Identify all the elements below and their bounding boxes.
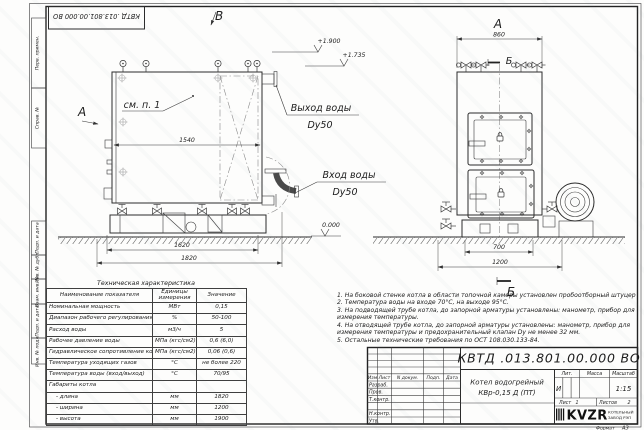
elevation-1900: +1.900 bbox=[318, 38, 341, 45]
param-units: МПа (кгс/см2) bbox=[153, 347, 197, 358]
drain-valve-icon bbox=[198, 205, 207, 215]
bolt-icon bbox=[480, 212, 484, 216]
bolt-icon bbox=[529, 184, 533, 188]
param-units: °С bbox=[153, 370, 197, 381]
note-item: 5. Остальные технические требования по О… bbox=[337, 337, 639, 344]
param-name: Диапазон рабочего регулирования bbox=[47, 314, 153, 325]
param-value: 0,6 (6,0) bbox=[197, 336, 247, 347]
param-value bbox=[197, 381, 247, 392]
bolt-icon bbox=[520, 212, 524, 216]
bolt-icon bbox=[480, 115, 484, 119]
margin-label: Подп. и дата bbox=[35, 305, 41, 336]
section-letter-b-top: Б bbox=[506, 56, 513, 67]
tech-table-title: Техническая характеристика bbox=[46, 280, 246, 287]
margin-label: Подп. и дата bbox=[35, 222, 41, 253]
crosshair-mark-icon bbox=[118, 74, 127, 83]
param-units: мм bbox=[153, 392, 197, 403]
drain-valve-icon bbox=[153, 205, 162, 215]
header-units: Единицы измерения bbox=[153, 289, 197, 303]
dimension-1540: 1540 bbox=[179, 137, 195, 144]
param-name: Рабочее давление воды bbox=[47, 336, 153, 347]
table-row: Диапазон рабочего регулирования%50-100 bbox=[47, 314, 247, 325]
table-header-row: Наименование показателя Единицы измерени… bbox=[47, 289, 247, 303]
safety-valve-icon bbox=[215, 60, 221, 72]
bolt-icon bbox=[520, 171, 524, 175]
param-units: МВт bbox=[153, 303, 197, 314]
elevation-0000: 0.000 bbox=[322, 222, 340, 229]
table-row: Номинальная мощностьМВт0,15 bbox=[47, 303, 247, 314]
bolt-icon bbox=[529, 202, 533, 206]
bolt-icon bbox=[527, 147, 531, 151]
drain-valve-icon bbox=[228, 205, 237, 215]
param-units: °С bbox=[153, 358, 197, 369]
view-letter-a-front: А bbox=[493, 17, 502, 31]
table-row: Температура уходящих газов°Сне более 220 bbox=[47, 358, 247, 369]
tech-table-body: Номинальная мощностьМВт0,15Диапазон рабо… bbox=[47, 303, 247, 426]
mass-header: Масса bbox=[587, 371, 602, 377]
top-doc-number: КВТД .013.801.00.000 ВО bbox=[53, 12, 140, 20]
outlet-dn-label: Dy50 bbox=[307, 120, 332, 131]
notes: 1. На боковой стенке котла в области топ… bbox=[337, 292, 639, 344]
sheet-label: Лист bbox=[558, 400, 571, 406]
dimension-1620: 1620 bbox=[174, 242, 190, 249]
door-lock-icon bbox=[498, 189, 504, 197]
table-row: Температура воды (вход/выход)°С70/95 bbox=[47, 370, 247, 381]
see-note-label: см. п. 1 bbox=[124, 100, 161, 111]
bolt-icon bbox=[527, 129, 531, 133]
bolt-icon bbox=[500, 212, 504, 216]
dimension-1820: 1820 bbox=[181, 255, 197, 262]
format-label: Формат bbox=[596, 425, 615, 430]
product-title-line2: КВр-0,15 Д (ПТ) bbox=[478, 389, 536, 397]
sheets-label: Листов bbox=[598, 400, 617, 406]
bolt-icon bbox=[480, 171, 484, 175]
side-view-annotations: 1540 1620 1820 см. п. 1 А В Выход воды D… bbox=[77, 9, 386, 267]
inlet-label: Вход воды bbox=[322, 170, 376, 181]
param-name: Гидравлическое сопротивление котла bbox=[47, 347, 153, 358]
param-value: 0,06 (0,6) bbox=[197, 347, 247, 358]
header-value: Значение bbox=[197, 289, 247, 303]
margin-label: Перв. примен. bbox=[35, 36, 41, 71]
param-name: Расход воды bbox=[47, 325, 153, 336]
outlet-label: Выход воды bbox=[291, 103, 352, 114]
view-letter-v-top: В bbox=[215, 9, 223, 23]
margin-column: Перв. примен. Справ. № Подп. и дата Инв.… bbox=[32, 18, 47, 367]
param-units: мм bbox=[153, 403, 197, 414]
doc-number: КВТД .013.801.00.000 ВО bbox=[458, 351, 641, 366]
param-value: 1900 bbox=[197, 414, 247, 425]
safety-valve-icon bbox=[527, 62, 545, 72]
table-row: - ширинамм1200 bbox=[47, 403, 247, 414]
table-row: Гидравлическое сопротивление котлаМПа (к… bbox=[47, 347, 247, 358]
title-block: Изм Лист N докум. Подп. Дата Разраб. Про… bbox=[368, 348, 641, 430]
header-name: Наименование показателя bbox=[47, 289, 153, 303]
table-row: Габариты котла bbox=[47, 381, 247, 392]
table-row: Расход водым3/ч5 bbox=[47, 325, 247, 336]
logo-caption-1: КОТЕЛЬНЫЙ bbox=[608, 410, 634, 415]
param-units: % bbox=[153, 314, 197, 325]
elevation-1735: +1.735 bbox=[343, 52, 366, 59]
param-name: Температура воды (вход/выход) bbox=[47, 370, 153, 381]
lit-header: Лит. bbox=[560, 371, 572, 377]
param-value: 5 bbox=[197, 325, 247, 336]
bolt-icon bbox=[500, 171, 504, 175]
logo-caption-2: ЗАВОД РЭП bbox=[608, 415, 631, 420]
bolt-icon bbox=[480, 159, 484, 163]
tech-table: Наименование показателя Единицы измерени… bbox=[46, 288, 247, 426]
view-letter-a-side: А bbox=[77, 105, 86, 119]
param-name: - длина bbox=[47, 392, 153, 403]
side-valve-icon bbox=[441, 202, 456, 212]
table-row: Рабочее давление водыМПа (кгс/см2)0,6 (6… bbox=[47, 336, 247, 347]
param-value: 50-100 bbox=[197, 314, 247, 325]
door-lock-icon bbox=[497, 133, 503, 141]
lit-value: И bbox=[556, 385, 562, 393]
param-name: Габариты котла bbox=[47, 381, 153, 392]
boiler-front-view bbox=[373, 62, 625, 244]
boiler-side-view bbox=[58, 60, 312, 244]
side-valve-icon bbox=[441, 219, 456, 229]
inlet-dn-label: Dy50 bbox=[332, 187, 357, 198]
col-izm: Изм bbox=[368, 375, 378, 381]
sheets-value: 2 bbox=[627, 400, 630, 406]
side-valve-icon bbox=[542, 202, 557, 212]
tech-characteristics: Техническая характеристика Наименование … bbox=[46, 280, 246, 426]
top-doc-number-box: КВТД .013.801.00.000 ВО bbox=[49, 7, 145, 30]
bolt-icon bbox=[519, 159, 523, 163]
sign-row-nkontr: Н.контр. bbox=[369, 411, 390, 417]
sign-row-razrab: Разраб. bbox=[369, 382, 388, 388]
sign-row-tkontr: Т.контр. bbox=[369, 397, 390, 403]
param-value: 1820 bbox=[197, 392, 247, 403]
crosshair-mark-icon bbox=[119, 168, 128, 177]
param-name: - высота bbox=[47, 414, 153, 425]
margin-label: Взам. инв. № bbox=[35, 276, 41, 307]
crosshair-mark-icon bbox=[119, 118, 128, 127]
param-value: не более 220 bbox=[197, 358, 247, 369]
drawing-sheet: Перв. примен. Справ. № Подп. и дата Инв.… bbox=[0, 0, 644, 430]
param-units: МПа (кгс/см2) bbox=[153, 336, 197, 347]
crosshair-mark-icon bbox=[214, 74, 223, 83]
sheet-value: 1 bbox=[575, 400, 578, 406]
dimension-1200: 1200 bbox=[492, 259, 508, 266]
param-value: 1200 bbox=[197, 403, 247, 414]
logo-text: KVZR bbox=[567, 409, 608, 424]
scale-value: 1:15 bbox=[616, 385, 632, 393]
col-data: Дата bbox=[445, 375, 458, 381]
product-title-line1: Котел водогрейный bbox=[470, 379, 544, 387]
safety-valve-icon bbox=[143, 60, 149, 72]
param-name: - ширина bbox=[47, 403, 153, 414]
company-logo: KVZR КОТЕЛЬНЫЙ ЗАВОД РЭП bbox=[556, 409, 634, 424]
table-row: - длинамм1820 bbox=[47, 392, 247, 403]
col-ndocum: N докум. bbox=[397, 375, 418, 381]
safety-valve-icon bbox=[254, 60, 260, 72]
table-row: - высотамм1900 bbox=[47, 414, 247, 425]
safety-valve-icon bbox=[511, 62, 529, 72]
param-name: Номинальная мощность bbox=[47, 303, 153, 314]
margin-label: Справ. № bbox=[35, 107, 41, 130]
sign-row-prov: Пров. bbox=[369, 390, 383, 396]
dimension-860: 860 bbox=[493, 32, 505, 39]
param-name: Температура уходящих газов bbox=[47, 358, 153, 369]
col-podp: Подп. bbox=[427, 375, 441, 381]
note-item: 3. На подводящей трубе котла, до запорно… bbox=[337, 307, 639, 322]
param-units: мм bbox=[153, 414, 197, 425]
scale-header: Масштаб bbox=[612, 371, 635, 377]
safety-valve-icon bbox=[120, 60, 126, 72]
margin-label: Инв. № подл. bbox=[35, 335, 41, 367]
param-value: 0,15 bbox=[197, 303, 247, 314]
format-value: А3 bbox=[621, 425, 629, 430]
param-units: м3/ч bbox=[153, 325, 197, 336]
param-value: 70/95 bbox=[197, 370, 247, 381]
drain-valve-icon bbox=[118, 205, 127, 215]
note-item: 2. Температура воды на входе 70°С, на вы… bbox=[337, 299, 639, 306]
safety-valve-icon bbox=[245, 60, 251, 72]
param-units bbox=[153, 381, 197, 392]
col-list: Лист bbox=[378, 375, 391, 381]
bolt-icon bbox=[519, 115, 523, 119]
dimension-700: 700 bbox=[493, 244, 505, 251]
safety-valve-icon bbox=[471, 62, 489, 72]
sign-row-utv: Утв. bbox=[369, 418, 379, 424]
note-item: 4. На отводящей трубе котла, до запорной… bbox=[337, 322, 639, 337]
drain-valve-icon bbox=[241, 205, 250, 215]
